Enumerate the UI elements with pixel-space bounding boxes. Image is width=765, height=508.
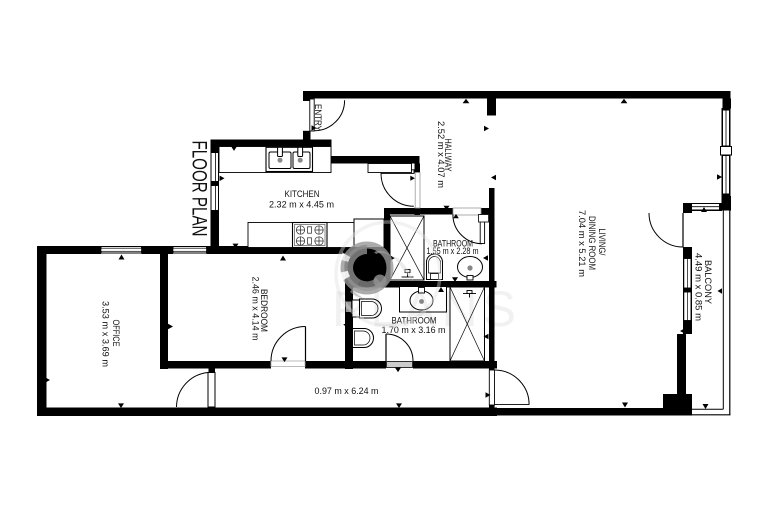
svg-text:4.49 m x 0.85 m: 4.49 m x 0.85 m (693, 253, 704, 321)
svg-text:2.52 m x 4.07 m: 2.52 m x 4.07 m (435, 121, 446, 188)
svg-text:FLOOR PLAN: FLOOR PLAN (188, 141, 211, 237)
svg-text:OFFICE: OFFICE (110, 320, 121, 347)
svg-text:PLANS: PLANS (332, 281, 521, 337)
svg-text:3.53 m x 3.69 m: 3.53 m x 3.69 m (100, 301, 111, 367)
svg-text:KITCHEN: KITCHEN (285, 189, 320, 200)
svg-text:7.04 m x 5.21 m: 7.04 m x 5.21 m (576, 210, 587, 277)
svg-text:2.32 m x 4.45 m: 2.32 m x 4.45 m (269, 200, 334, 211)
svg-text:2.46 m x 4.14 m: 2.46 m x 4.14 m (251, 277, 261, 341)
svg-text:0.97 m x 6.24 m: 0.97 m x 6.24 m (315, 386, 379, 397)
